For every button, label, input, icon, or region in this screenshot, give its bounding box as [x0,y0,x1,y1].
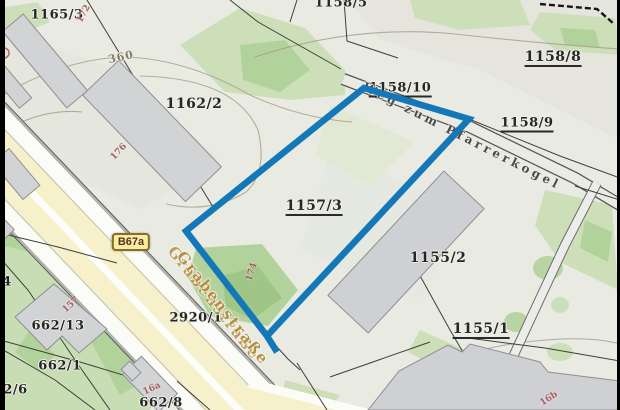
parcel-label-1155-1: 1155/1 [453,321,510,339]
cadastral-map-viewport[interactable]: 1165/3 1158/5 1158/8 1158/10 1158/9 1162… [0,0,620,410]
parcel-label-1158-9: 1158/9 [501,116,554,133]
parcel-label-1157-3: 1157/3 [286,198,343,216]
parcel-label-1155-2: 1155/2 [410,250,467,266]
parcel-label-1158-5: 1158/5 [315,0,368,11]
left-frame-bar [0,0,5,410]
parcel-label-662-13: 662/13 [32,319,85,334]
parcel-label-662-8: 662/8 [139,396,182,410]
parcel-label-1162-2: 1162/2 [166,96,223,112]
parcel-label-1158-8: 1158/8 [525,49,582,67]
parcel-label-662-1: 662/1 [38,359,81,374]
road-ref-badge: B67a [112,233,150,251]
